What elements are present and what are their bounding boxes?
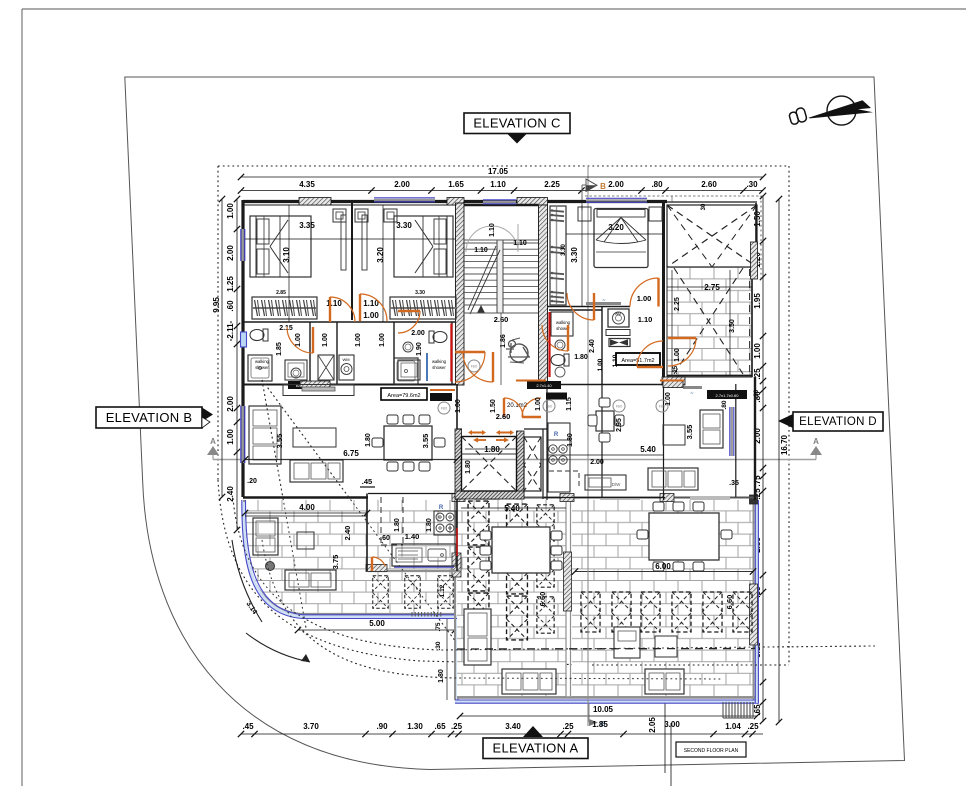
svg-text:D/W: D/W [612,482,622,487]
svg-text:2.60: 2.60 [701,180,717,189]
svg-text:FBO: FBO [546,405,553,409]
svg-text:10.05: 10.05 [593,705,614,714]
svg-text:.60: .60 [380,535,390,542]
svg-text:.65: .65 [434,722,446,731]
svg-text:30: 30 [701,203,707,210]
svg-text:2.00: 2.00 [394,180,410,189]
svg-text:1.85: 1.85 [592,720,608,729]
svg-text:.90: .90 [376,722,388,731]
svg-text:FBO: FBO [616,405,623,409]
svg-text:.25: .25 [451,722,463,731]
svg-text:3.10: 3.10 [282,247,291,263]
svg-text:1.10: 1.10 [638,315,653,324]
svg-text:1.80: 1.80 [465,460,472,474]
svg-text:WM: WM [615,312,621,316]
svg-text:Area=79.6m2: Area=79.6m2 [387,393,420,399]
svg-text:2.85: 2.85 [276,290,286,296]
svg-text:.75: .75 [435,622,442,631]
svg-text:5.40: 5.40 [640,445,656,454]
svg-text:.35: .35 [729,480,739,487]
svg-text:A: A [813,437,819,446]
svg-text:.80: .80 [651,180,663,189]
svg-text:2.25: 2.25 [674,297,681,311]
svg-text:17.05: 17.05 [488,167,509,176]
svg-text:6.75: 6.75 [343,449,359,458]
svg-text:2.40: 2.40 [589,339,596,353]
svg-text:3.35: 3.35 [299,221,315,230]
svg-text:1.00: 1.00 [597,358,604,371]
svg-text:2.15: 2.15 [279,325,293,332]
svg-text:6.60: 6.60 [725,595,734,610]
svg-text:1.50: 1.50 [490,399,497,413]
svg-text:1.40: 1.40 [405,532,420,541]
svg-text:ELEVATION B: ELEVATION B [106,410,193,425]
svg-text:R: R [439,505,444,511]
svg-text:1.90: 1.90 [416,342,423,356]
svg-text:3.55: 3.55 [685,425,694,440]
svg-text:.30: .30 [754,389,760,398]
svg-text:1.80: 1.80 [484,445,500,454]
svg-text:.80: .80 [721,400,728,409]
svg-text:B: B [600,182,606,191]
svg-text:1.80: 1.80 [567,433,574,447]
svg-text:1.80: 1.80 [365,433,372,447]
svg-text:16.70: 16.70 [780,434,789,455]
svg-text:.25: .25 [562,722,574,731]
svg-text:1.00: 1.00 [355,333,362,347]
svg-text:1.10: 1.10 [474,247,488,254]
svg-text:3.55: 3.55 [275,434,284,449]
svg-text:2.60: 2.60 [496,412,511,421]
svg-text:.60: .60 [226,300,235,312]
svg-text:3.30: 3.30 [396,221,412,230]
svg-text:R: R [554,432,559,438]
svg-text:3.55: 3.55 [421,434,430,449]
svg-text:3.30: 3.30 [561,244,567,256]
svg-text:1.10: 1.10 [513,240,527,247]
svg-text:3.00: 3.00 [664,720,680,729]
svg-text:.30: .30 [746,180,758,189]
svg-text:9.95: 9.95 [212,297,221,313]
svg-text:1.80: 1.80 [438,669,445,683]
svg-text:walking: walking [255,359,270,364]
svg-text:1.85: 1.85 [276,342,283,356]
svg-text:.65: .65 [753,704,762,716]
svg-text:.20: .20 [247,478,257,485]
svg-text:1.00: 1.00 [535,397,542,411]
svg-text:3.20: 3.20 [376,247,385,263]
svg-text:1.25: 1.25 [226,276,235,292]
svg-text:2.7x1.40: 2.7x1.40 [536,383,552,388]
svg-text:.45: .45 [242,722,254,731]
svg-text:3.40: 3.40 [505,722,521,731]
svg-text:1.80: 1.80 [574,354,588,361]
svg-text:1.00: 1.00 [674,348,681,362]
svg-text:1.00: 1.00 [665,392,672,406]
svg-text:FBO: FBO [441,407,448,411]
svg-text:2.00: 2.00 [608,180,624,189]
svg-text:2.40: 2.40 [226,486,235,502]
svg-text:2.95: 2.95 [616,418,623,432]
svg-text:2.40: 2.40 [343,526,352,541]
svg-text:1.00: 1.00 [226,203,235,219]
svg-text:1.00: 1.00 [379,333,386,347]
svg-text:2.00: 2.00 [590,459,604,466]
svg-text:tv: tv [602,297,605,302]
svg-text:.45: .45 [362,477,372,486]
svg-text:3.75: 3.75 [331,555,340,570]
svg-text:WM: WM [342,357,349,362]
svg-text:1.30: 1.30 [407,722,423,731]
svg-text:4.00: 4.00 [299,503,315,512]
svg-text:1.12: 1.12 [439,584,446,597]
svg-text:2.25: 2.25 [544,180,560,189]
svg-text:2.00: 2.00 [226,245,235,261]
svg-text:ELEVATION A: ELEVATION A [493,740,579,755]
svg-text:3.30: 3.30 [570,247,579,263]
svg-text:.30: .30 [435,641,442,650]
svg-text:ELEVATION D: ELEVATION D [799,416,877,428]
svg-text:1.04: 1.04 [725,722,741,731]
svg-text:6.60: 6.60 [538,592,547,607]
svg-text:1.00: 1.00 [637,294,652,303]
svg-text:1.00: 1.00 [455,399,462,413]
svg-text:.25: .25 [747,722,759,731]
svg-text:1.00: 1.00 [322,333,329,347]
svg-text:2.7x1.7x0.60: 2.7x1.7x0.60 [716,393,740,398]
svg-text:1.00: 1.00 [295,333,302,347]
svg-text:SECOND FLOOR PLAN: SECOND FLOOR PLAN [684,748,739,754]
svg-text:2.00: 2.00 [411,330,425,337]
svg-text:A: A [210,437,216,446]
svg-text:1.10: 1.10 [489,223,496,237]
svg-text:1.80: 1.80 [426,518,433,532]
svg-text:1.00: 1.00 [226,429,235,445]
svg-text:2.00: 2.00 [226,396,235,412]
svg-text:1.15: 1.15 [566,397,573,411]
svg-text:5.40: 5.40 [504,504,520,513]
svg-text:3.70: 3.70 [303,722,319,731]
svg-text:6.00: 6.00 [655,562,671,571]
svg-text:tv: tv [690,390,693,395]
svg-text:1.65: 1.65 [448,180,464,189]
svg-text:FBO: FBO [471,365,478,369]
svg-text:1.10: 1.10 [490,180,506,189]
svg-text:3.30: 3.30 [415,290,425,296]
svg-text:shower: shower [255,365,269,370]
svg-text:.25: .25 [673,365,679,374]
svg-text:-2.11-: -2.11- [226,320,235,341]
svg-text:1.00: 1.00 [363,311,379,320]
svg-text:2.05: 2.05 [648,717,657,733]
svg-text:5.00: 5.00 [369,619,385,628]
svg-text:2.75: 2.75 [704,283,720,292]
svg-text:shower: shower [432,365,446,370]
svg-text:3.20: 3.20 [608,223,624,232]
svg-text:walking: walking [432,359,447,364]
svg-text:walking: walking [556,320,571,325]
svg-text:1.00: 1.00 [753,343,762,359]
svg-text:ELEVATION C: ELEVATION C [473,115,560,130]
svg-text:1.10: 1.10 [326,299,342,308]
svg-text:1.80: 1.80 [394,518,401,532]
svg-text:1.95: 1.95 [753,293,762,309]
svg-text:4.35: 4.35 [299,180,315,189]
